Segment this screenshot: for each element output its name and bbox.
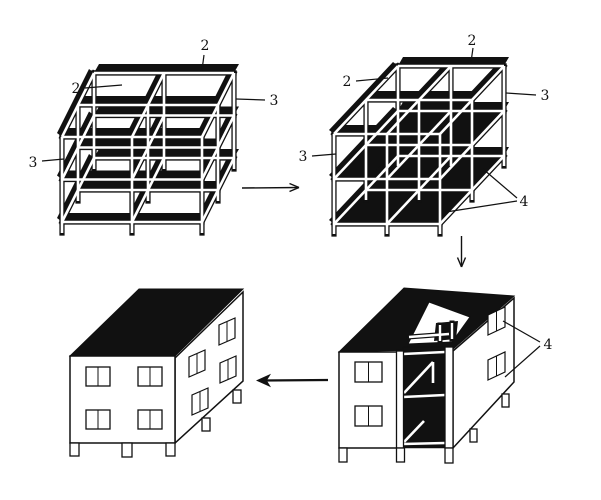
label-fig1-frame-right: 3 [270, 93, 279, 109]
partially-clad-building-figure [339, 288, 514, 463]
label-fig2-slabs: 4 [520, 194, 529, 210]
frame-with-slabs-figure [329, 57, 509, 234]
label-fig2-beam-left: 2 [343, 74, 352, 90]
label-fig3-wall-panels: 4 [544, 337, 553, 353]
label-fig1-frame-left: 3 [29, 155, 38, 171]
frame-skeleton-figure [57, 64, 239, 233]
construction-sequence-figure: 2 2 3 3 2 2 3 3 4 4 [0, 0, 601, 500]
label-fig1-beam-top: 2 [201, 38, 210, 54]
page-root: 2 2 3 3 2 2 3 3 4 4 [0, 0, 601, 500]
label-fig2-beam-top: 2 [468, 33, 477, 49]
label-fig2-frame-left: 3 [299, 149, 308, 165]
label-fig1-beam-left: 2 [72, 81, 81, 97]
label-fig2-frame-right: 3 [541, 88, 550, 104]
completed-building-figure [70, 289, 243, 457]
